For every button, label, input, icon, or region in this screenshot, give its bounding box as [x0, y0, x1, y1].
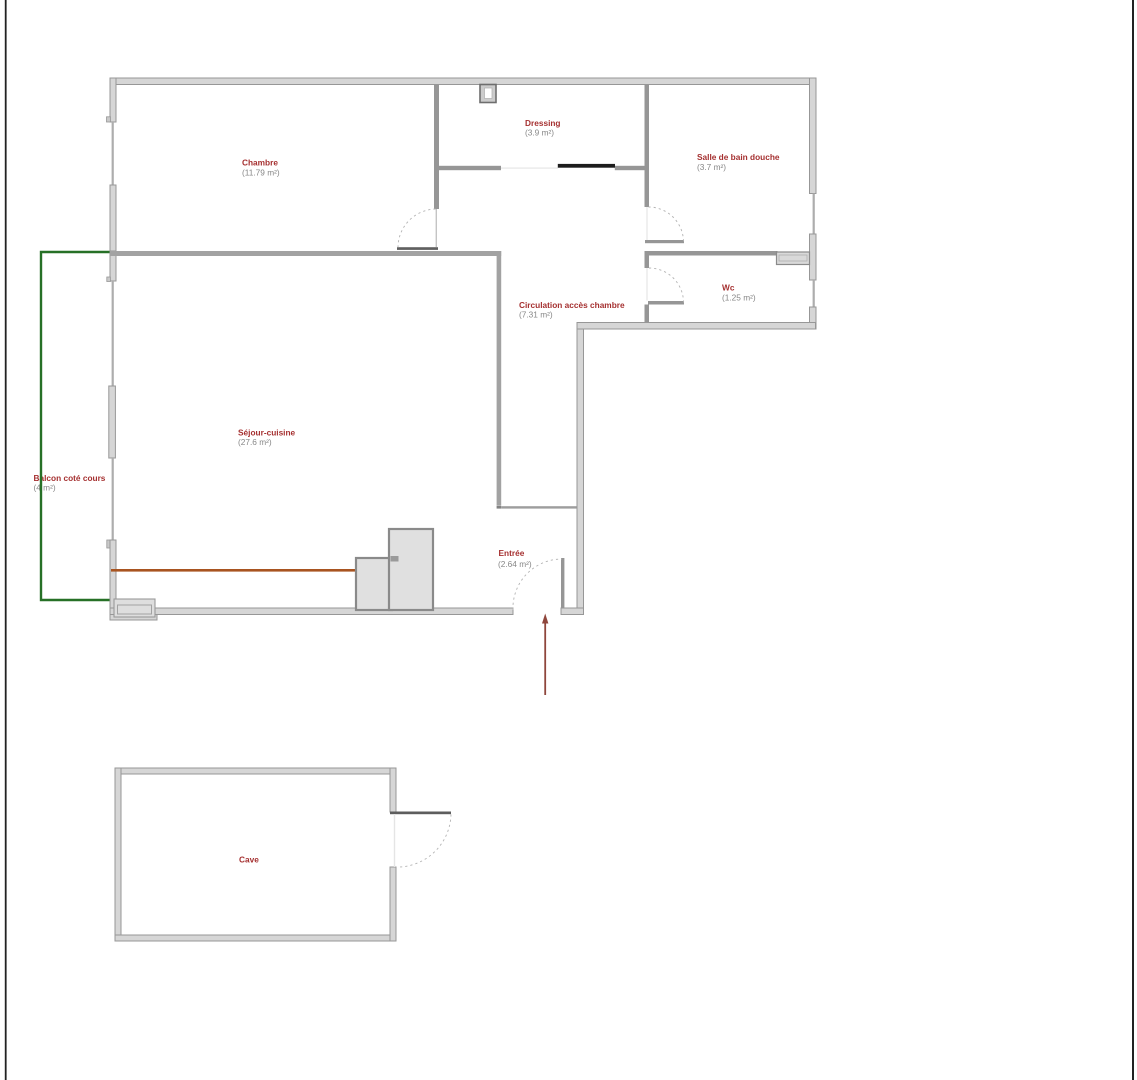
svg-text:(3.7 m²): (3.7 m²)	[697, 162, 726, 172]
svg-text:Séjour-cuisine: Séjour-cuisine	[238, 428, 296, 438]
svg-text:(4 m²): (4 m²)	[34, 483, 56, 493]
svg-text:Salle de bain douche: Salle de bain douche	[697, 152, 780, 162]
svg-text:Entrée: Entrée	[499, 548, 525, 558]
svg-text:Chambre: Chambre	[242, 158, 278, 168]
svg-text:(2.64 m²): (2.64 m²)	[498, 559, 532, 569]
svg-text:Dressing: Dressing	[525, 118, 561, 128]
svg-text:(7.31 m²): (7.31 m²)	[519, 310, 553, 320]
svg-text:(1.25 m²): (1.25 m²)	[722, 293, 756, 303]
svg-text:Balcon coté cours: Balcon coté cours	[34, 473, 106, 483]
svg-text:Circulation accès chambre: Circulation accès chambre	[519, 300, 625, 310]
svg-text:(27.6 m²): (27.6 m²)	[238, 437, 272, 447]
svg-text:(11.79 m²): (11.79 m²)	[242, 168, 280, 178]
svg-text:(3.9 m²): (3.9 m²)	[525, 128, 554, 138]
svg-text:Cave: Cave	[239, 855, 259, 865]
svg-text:Wc: Wc	[722, 283, 735, 293]
